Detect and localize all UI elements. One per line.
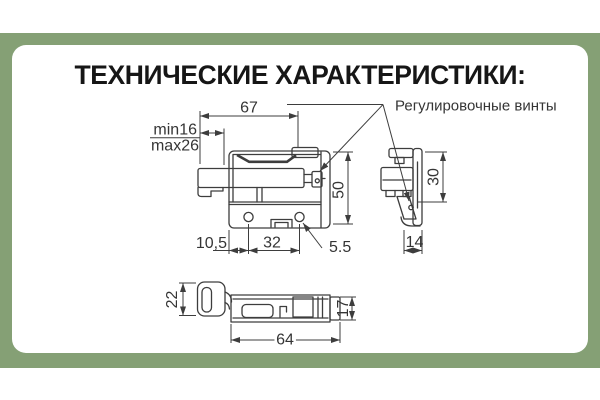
dim-front-height: 50 [331, 181, 348, 199]
dim-front-edge-to-hole: 10,5 [196, 235, 227, 252]
screw-hole [315, 179, 319, 183]
dim-bottom-body-width: 17 [335, 300, 352, 318]
bottom-view-dimensions: 22 64 17 [164, 283, 356, 349]
technical-drawing: 67 min16 max26 50 10,5 32 5.5 Регулирово… [0, 0, 600, 400]
body-seam-lines [229, 202, 321, 205]
dim-front-width: 67 [240, 100, 258, 117]
bottom-double-wall [318, 297, 323, 318]
latch-tongue [198, 169, 304, 188]
side-view [381, 149, 422, 227]
adjustment-screws-label: Регулировочные винты [395, 98, 557, 115]
body-inner-lines [233, 152, 321, 228]
front-view [198, 148, 330, 229]
dim-bottom-hook-width: 22 [164, 291, 181, 309]
mounting-hole-left [244, 212, 253, 221]
mounting-hole-right [295, 212, 304, 221]
bottom-hook-slot [202, 288, 212, 313]
bottom-view [198, 282, 341, 322]
dim-front-hole-spacing: 32 [263, 235, 281, 252]
body-channel [257, 188, 262, 203]
dim-bottom-length: 64 [276, 332, 294, 349]
technical-specs-section: ТЕХНИЧЕСКИЕ ХАРАКТЕРИСТИКИ: [0, 0, 600, 400]
side-top-hook [389, 149, 413, 158]
tongue-hook [198, 188, 223, 197]
bottom-tab [271, 220, 292, 228]
grip-recess [237, 155, 296, 162]
dim-side-height: 30 [426, 168, 443, 186]
side-top-step [395, 158, 404, 164]
bottom-spring-detail [280, 307, 287, 318]
dim-front-hole-diameter: 5.5 [329, 239, 351, 256]
bottom-housing [293, 297, 313, 317]
dim-front-min: min16 [153, 122, 197, 139]
side-tongue-block [381, 168, 413, 191]
bottom-tongue [242, 305, 273, 318]
dim-side-depth: 14 [406, 234, 424, 251]
dim-front-max: max26 [151, 138, 199, 155]
